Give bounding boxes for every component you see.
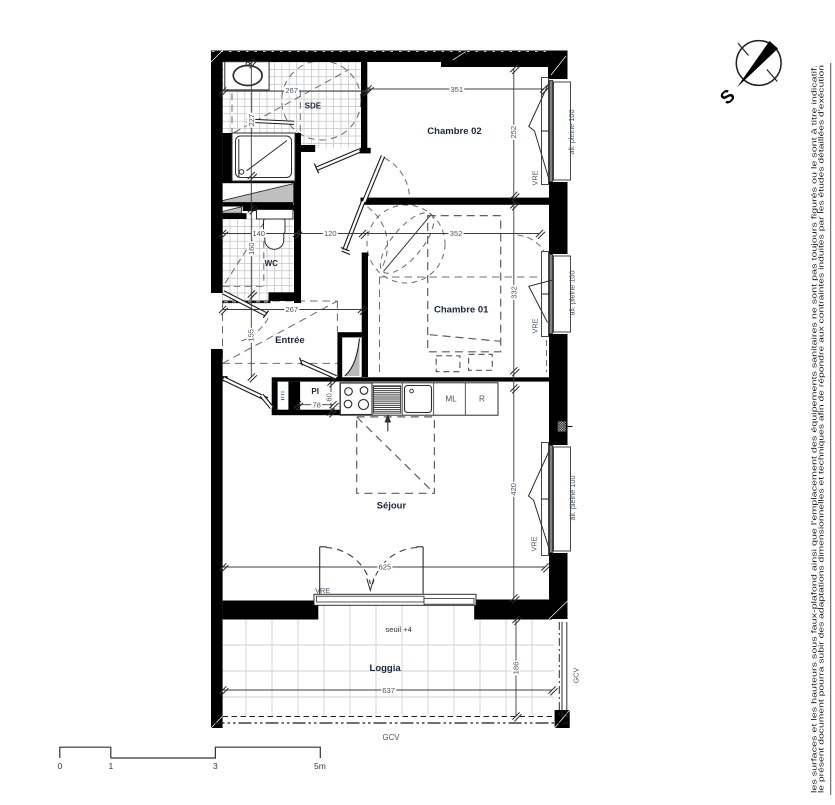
svg-text:625: 625	[379, 563, 392, 572]
svg-text:les surfaces et les hauteurs s: les surfaces et les hauteurs sous faux-p…	[810, 65, 819, 793]
svg-text:78: 78	[312, 400, 320, 409]
svg-text:267: 267	[285, 305, 298, 314]
svg-text:VRE: VRE	[531, 318, 540, 333]
svg-text:351: 351	[450, 85, 463, 94]
svg-text:all. pleine 100: all. pleine 100	[568, 475, 577, 520]
svg-text:332: 332	[509, 286, 518, 299]
svg-text:R: R	[479, 395, 485, 404]
svg-text:WC: WC	[265, 259, 279, 268]
svg-text:120: 120	[324, 229, 337, 238]
svg-text:5m: 5m	[314, 761, 326, 771]
svg-text:PI: PI	[311, 387, 319, 396]
svg-text:all. pleine 100: all. pleine 100	[567, 109, 576, 154]
svg-text:1: 1	[109, 761, 114, 771]
svg-text:Entrée: Entrée	[275, 335, 305, 346]
svg-text:Séjour: Séjour	[377, 501, 407, 512]
svg-text:GCV: GCV	[383, 733, 401, 742]
svg-text:60: 60	[325, 393, 334, 401]
svg-text:267: 267	[285, 86, 298, 95]
svg-text:VRE: VRE	[315, 586, 330, 595]
svg-text:seuil +4: seuil +4	[386, 625, 412, 634]
svg-text:637: 637	[382, 686, 395, 695]
svg-text:Loggia: Loggia	[370, 663, 402, 674]
svg-text:186: 186	[512, 662, 521, 675]
svg-text:GCV: GCV	[572, 668, 581, 684]
svg-text:160: 160	[247, 242, 256, 255]
svg-text:all. pleine 100: all. pleine 100	[567, 270, 576, 315]
svg-text:252: 252	[509, 126, 518, 139]
svg-text:0: 0	[58, 761, 63, 771]
svg-text:Chambre 02: Chambre 02	[427, 126, 481, 137]
svg-text:SDE: SDE	[305, 101, 322, 110]
svg-text:Chambre 01: Chambre 01	[434, 305, 489, 316]
svg-text:227: 227	[247, 114, 256, 127]
svg-text:ML: ML	[445, 395, 457, 404]
svg-text:VRE: VRE	[530, 536, 539, 551]
svg-text:VRE: VRE	[531, 170, 540, 185]
svg-text:420: 420	[509, 483, 518, 496]
svg-text:155: 155	[247, 329, 256, 342]
svg-text:3: 3	[213, 761, 218, 771]
svg-text:140: 140	[252, 229, 265, 238]
svg-text:352: 352	[450, 229, 463, 238]
